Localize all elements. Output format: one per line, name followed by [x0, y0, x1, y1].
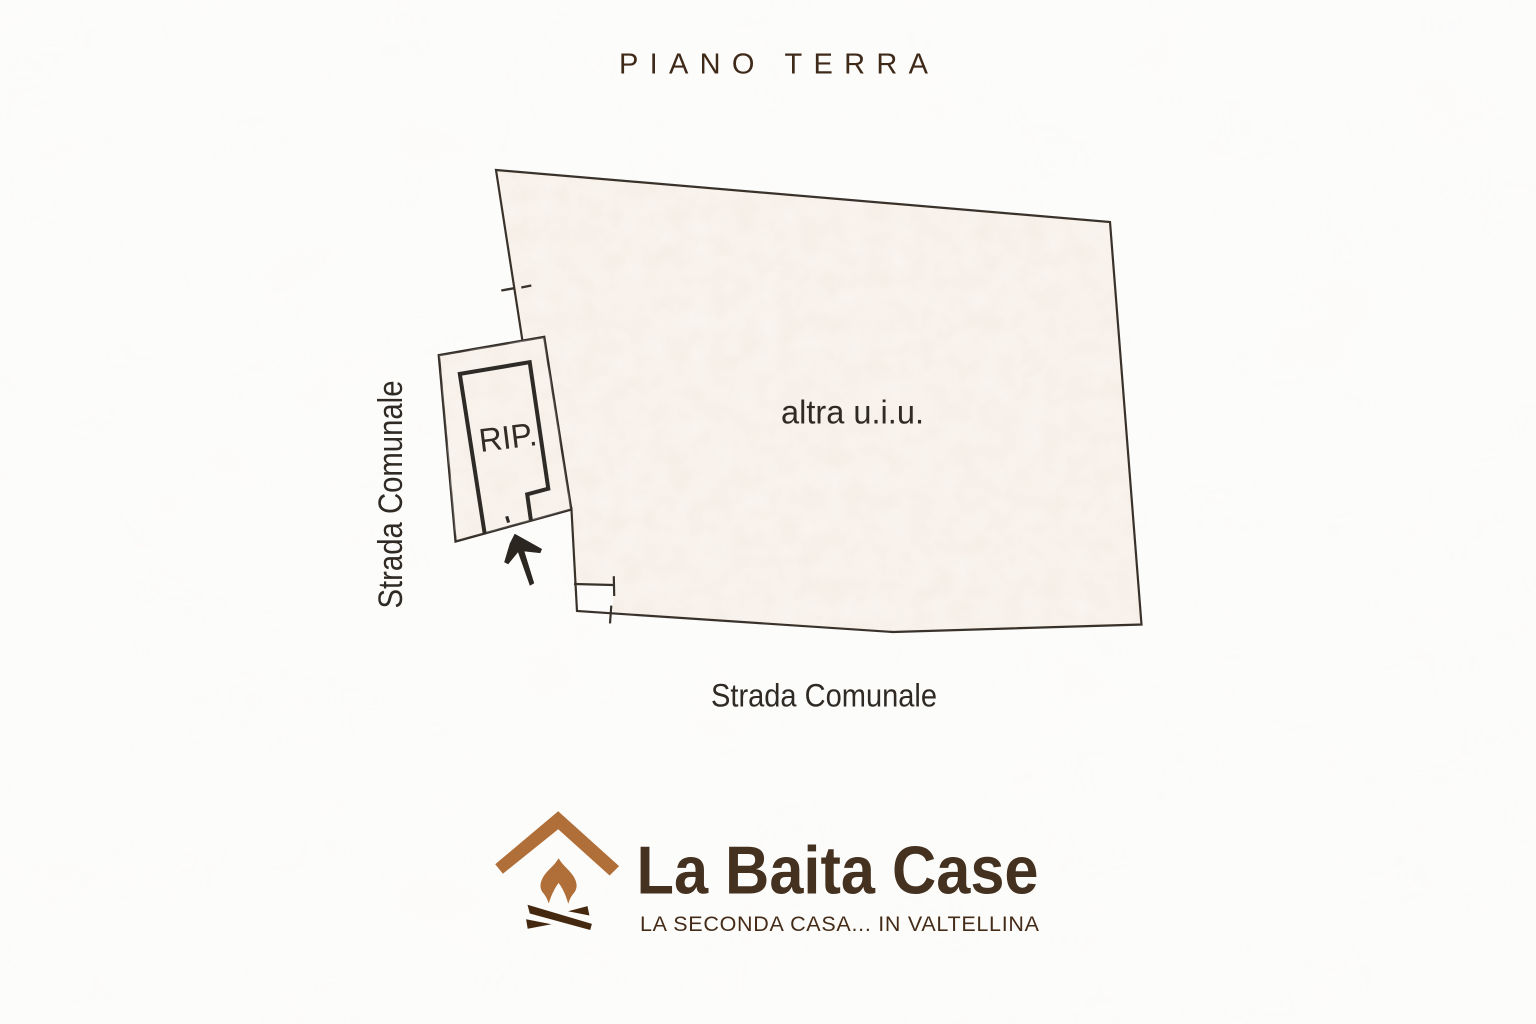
svg-text:LA SECONDA CASA... IN VALTELLI: LA SECONDA CASA... IN VALTELLINA [640, 912, 1040, 936]
svg-text:La Baita Case: La Baita Case [637, 832, 1039, 908]
svg-text:RIP.: RIP. [477, 415, 539, 459]
svg-text:Strada Comunale: Strada Comunale [372, 381, 410, 609]
svg-text:altra u.i.u.: altra u.i.u. [781, 394, 924, 431]
svg-text:Strada Comunale: Strada Comunale [711, 678, 937, 714]
